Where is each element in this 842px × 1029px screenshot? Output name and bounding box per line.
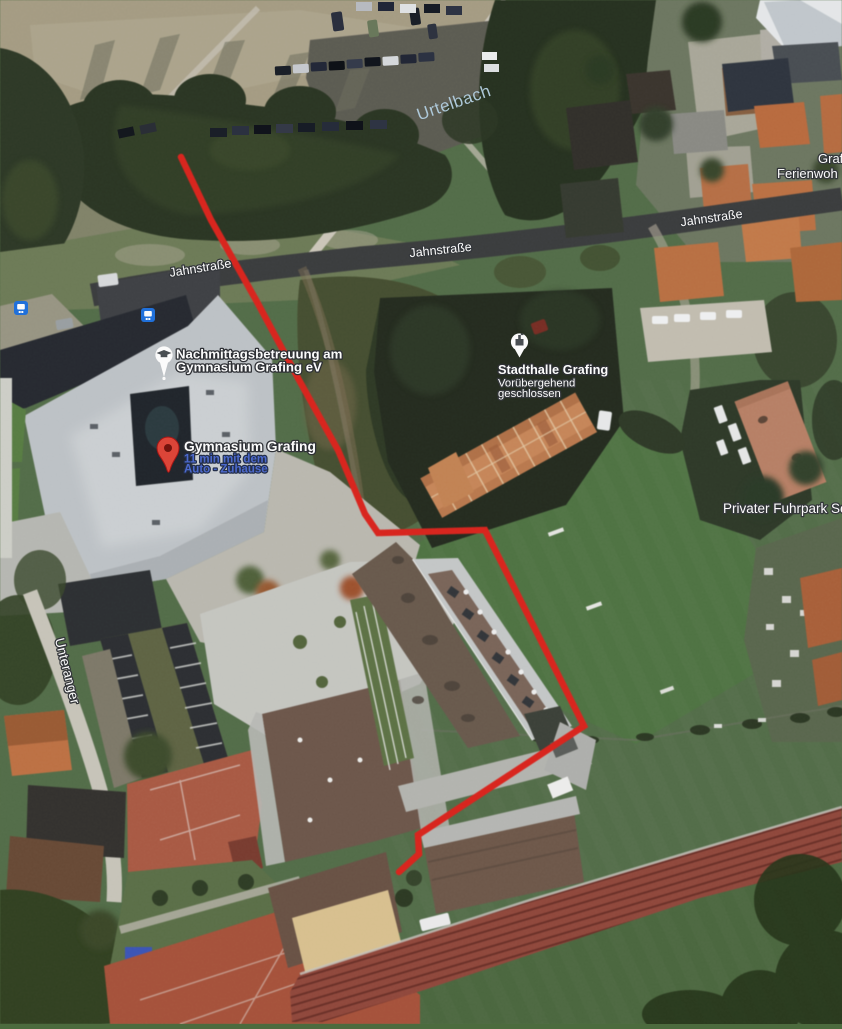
svg-text:Grafi: Grafi	[818, 151, 842, 166]
svg-text:Gymnasium Grafing: Gymnasium Grafing	[184, 439, 316, 454]
svg-text:Stadthalle Grafing: Stadthalle Grafing	[498, 362, 608, 377]
svg-text:Auto - Zuhause: Auto - Zuhause	[184, 464, 268, 476]
svg-text:Privater Fuhrpark Se: Privater Fuhrpark Se	[723, 501, 842, 516]
svg-text:Ferienwoh: Ferienwoh	[777, 166, 838, 181]
svg-text:Gymnasium Grafing eV: Gymnasium Grafing eV	[176, 360, 322, 375]
svg-text:geschlossen: geschlossen	[498, 388, 561, 400]
